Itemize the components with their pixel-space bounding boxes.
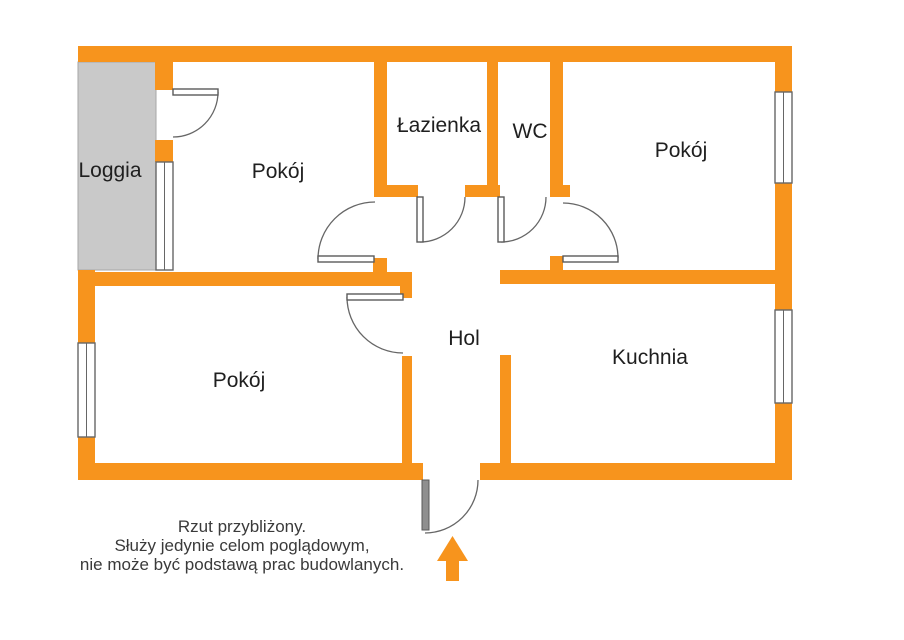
right-window-kitchen [775, 310, 792, 403]
top-wall [78, 46, 791, 62]
room-label-room-bottom: Pokój [213, 369, 266, 393]
room-label-hall: Hol [448, 327, 480, 351]
disclaimer-line-2: Służy jedynie celom poglądowym, [42, 536, 442, 555]
bathroom-left-wall [374, 62, 387, 185]
bathroom-door-stub-right [465, 185, 500, 197]
disclaimer-caption: Rzut przybliżony. Służy jedynie celom po… [42, 517, 442, 574]
wc-door-arc [501, 197, 546, 242]
disclaimer-line-1: Rzut przybliżony. [42, 517, 442, 536]
room-bottom-door-leaf [347, 294, 403, 300]
room-top-right-door-leaf [563, 256, 618, 262]
floor-plan-canvas: Loggia Pokój Łazienka WC Pokój Pokój Hol… [0, 0, 904, 640]
room1-door-hinge-stub [373, 258, 387, 272]
left-window [78, 343, 95, 437]
bathroom-door-leaf [417, 197, 423, 242]
hall-left-wall [402, 356, 412, 463]
room-label-wc: WC [513, 120, 548, 144]
room-label-room-top-left: Pokój [252, 160, 305, 184]
bathroom-wc-divider-wall [487, 62, 498, 185]
loggia-window [156, 162, 173, 270]
loggia-wall-upper-stub [155, 62, 173, 90]
middle-wall-left [78, 272, 412, 286]
room-label-kitchen: Kuchnia [612, 346, 688, 370]
room-label-room-top-right: Pokój [655, 139, 708, 163]
loggia-door-arc [173, 92, 218, 137]
room-top-left-door-arc [318, 202, 375, 259]
kitchen-divider-wall [500, 355, 511, 463]
middle-wall-right [500, 270, 791, 284]
walls [78, 46, 792, 480]
disclaimer-line-3: nie może być podstawą prac budowlanych. [42, 555, 442, 574]
bathroom-door-arc [420, 197, 465, 242]
room-top-left-door-leaf [318, 256, 374, 262]
room2-door-hinge-stub [550, 256, 563, 270]
room-top-right-door-arc [563, 203, 618, 258]
bottom-wall-right [480, 463, 791, 480]
wc-door-stub-right [550, 185, 570, 197]
loggia-door-leaf [173, 89, 218, 95]
right-window-top [775, 92, 792, 183]
wc-door-leaf [498, 197, 504, 242]
bottom-wall-left [78, 463, 423, 480]
loggia-wall-mid-stub [155, 140, 173, 162]
room-label-loggia: Loggia [78, 159, 141, 183]
room-bottom-door-arc [347, 297, 403, 353]
wc-right-wall [550, 62, 563, 197]
bathroom-door-stub-left [374, 185, 418, 197]
room-label-bathroom: Łazienka [397, 114, 481, 138]
